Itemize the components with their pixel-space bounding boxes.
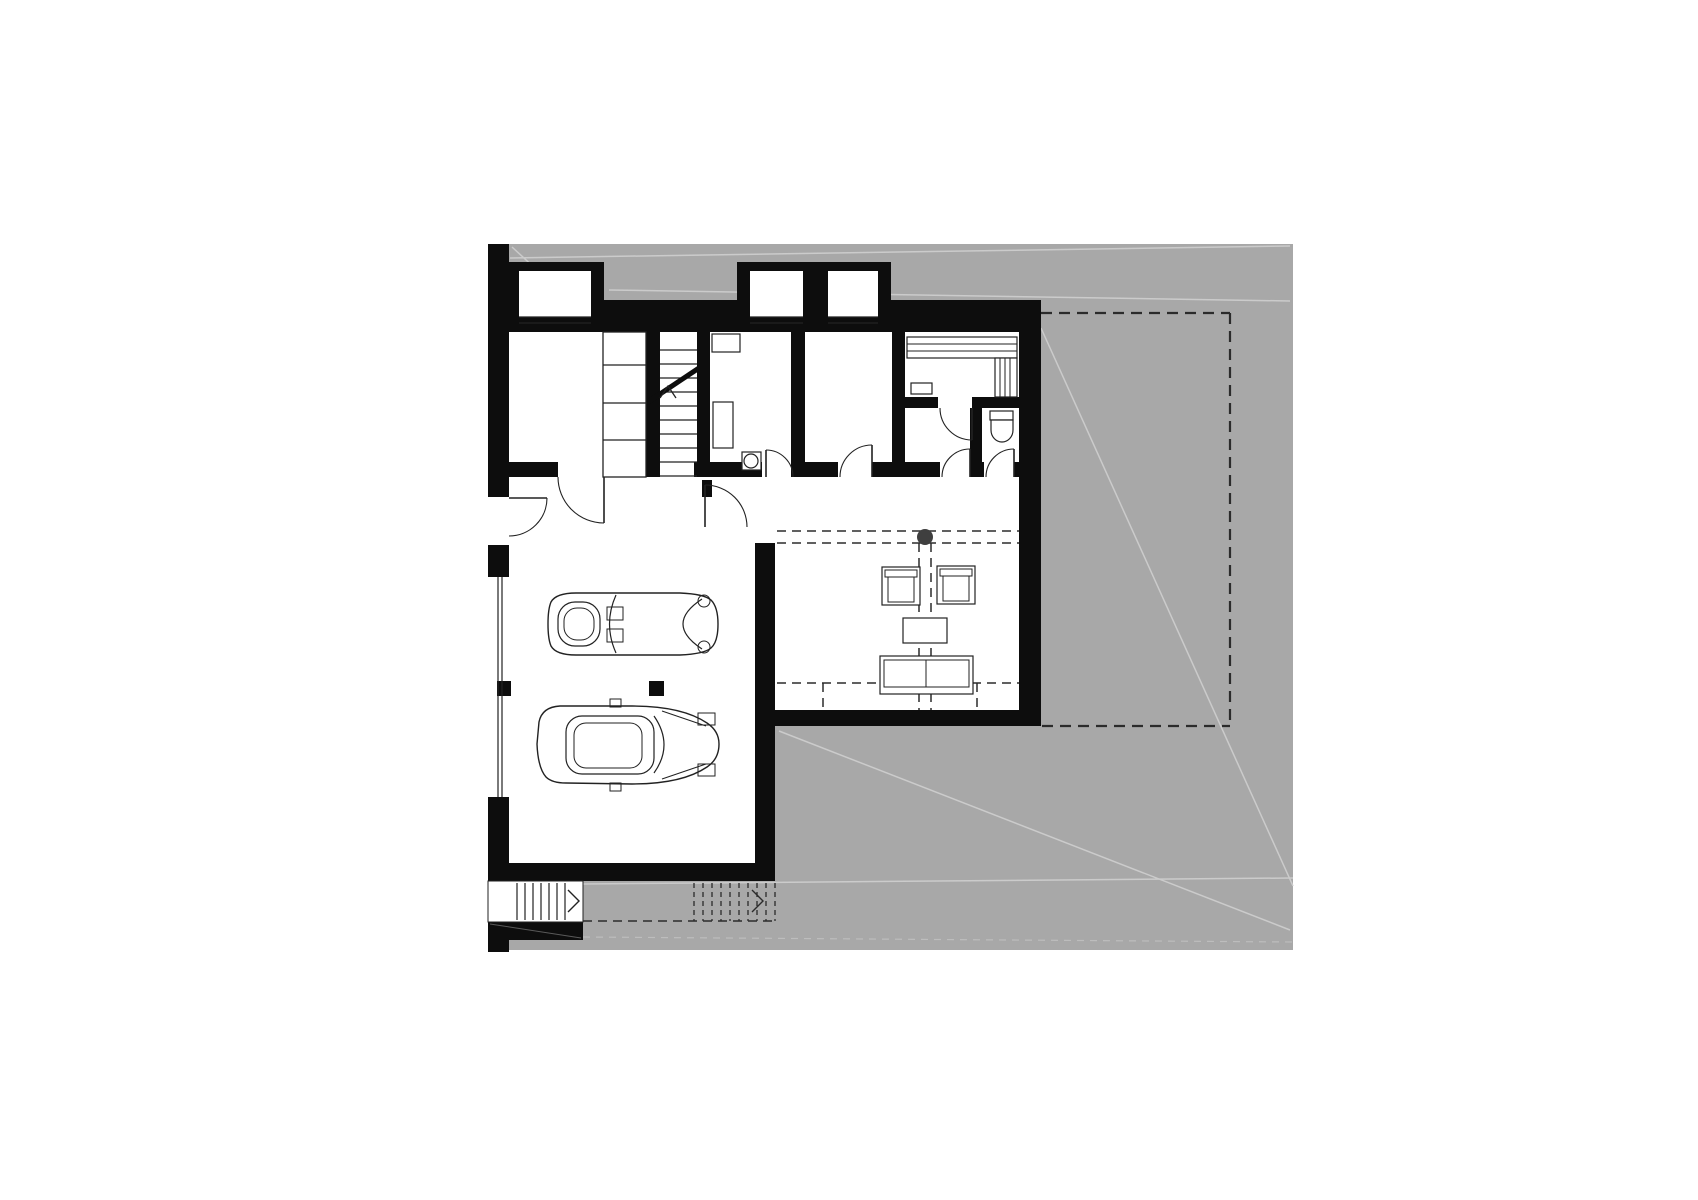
hall-wall [872, 462, 940, 477]
toilet-bowl [991, 420, 1013, 442]
window-bay-1-frame [506, 262, 519, 332]
window-bay-3-frame [878, 262, 891, 332]
garage-column [497, 681, 511, 696]
wardrobe [603, 332, 646, 477]
garage-column [649, 681, 664, 696]
floor-plan-canvas [0, 0, 1698, 1200]
window-bay-1-frame [506, 262, 604, 271]
sauna-wall [972, 397, 1019, 408]
garage-south-wall [488, 863, 775, 881]
window-bay-3-frame [815, 262, 828, 332]
living-south-wall [775, 710, 1041, 726]
room-divider-wall [791, 332, 805, 477]
window-bay-1-frame [591, 262, 604, 332]
wardrobe-wall [646, 332, 660, 477]
coffee-table [903, 618, 947, 643]
floor-plan-drawing [0, 0, 1698, 1200]
sauna-bench [995, 358, 1017, 397]
garage-east-wall [755, 543, 775, 881]
window-bay-1 [519, 271, 591, 317]
window-bay-3 [828, 271, 878, 317]
room-divider-wall [892, 332, 905, 477]
window-bay-2-frame [803, 262, 816, 332]
west-wall [488, 300, 509, 497]
hall-wall [509, 462, 558, 477]
window-bay-2 [750, 271, 803, 317]
site-step [488, 940, 509, 952]
east-wall [1019, 313, 1041, 726]
wall-stub [702, 480, 712, 497]
west-wall [488, 244, 509, 300]
desk [713, 402, 733, 448]
car-2 [537, 706, 719, 784]
toilet-tank [990, 411, 1013, 420]
west-wall [488, 545, 509, 577]
sauna-bench [907, 337, 1017, 358]
window-bay-2-frame [737, 262, 750, 332]
sauna-wall [905, 397, 938, 408]
shelf [712, 334, 740, 352]
structural-column [917, 529, 933, 545]
stair-wall [697, 332, 710, 477]
sauna-stove [911, 383, 932, 394]
exterior-stair [488, 881, 583, 922]
